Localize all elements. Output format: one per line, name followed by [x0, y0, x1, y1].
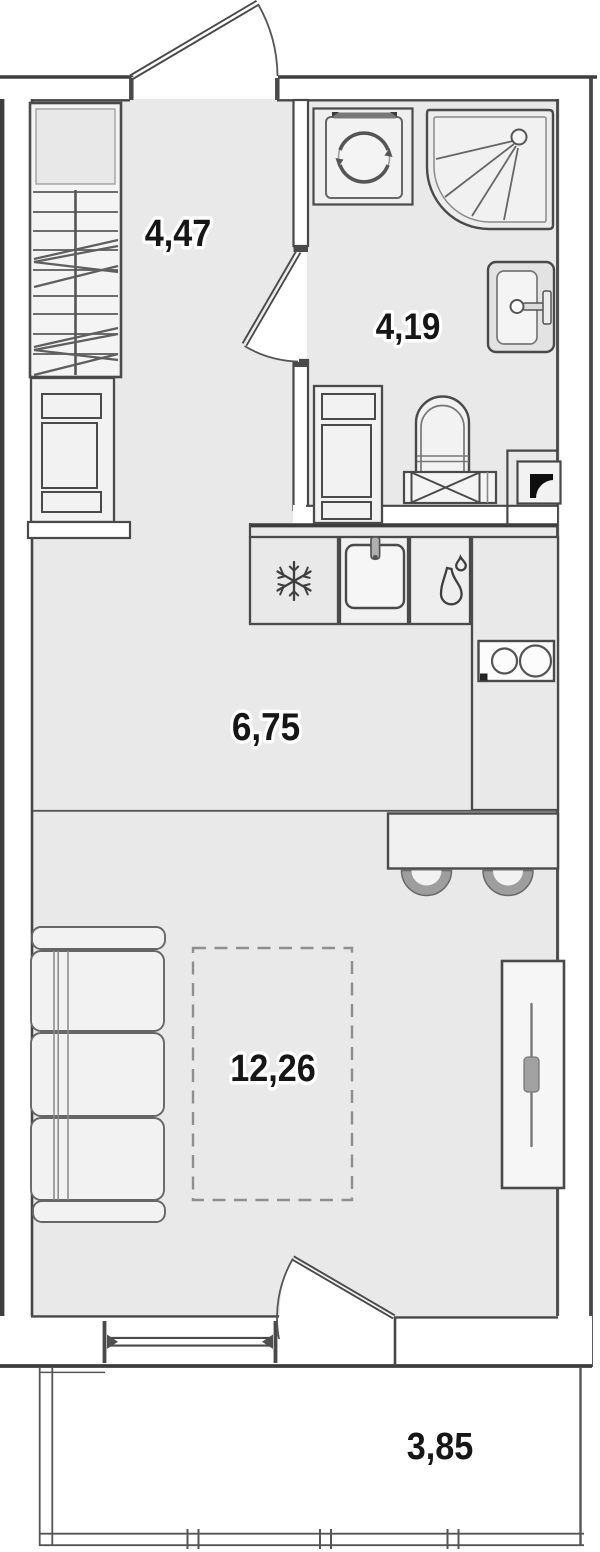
svg-text:3,85: 3,85 [407, 1424, 474, 1467]
svg-text:4,47: 4,47 [145, 211, 212, 254]
svg-text:6,75: 6,75 [232, 704, 300, 748]
svg-text:4,19: 4,19 [376, 306, 441, 347]
svg-text:12,26: 12,26 [230, 1046, 316, 1089]
